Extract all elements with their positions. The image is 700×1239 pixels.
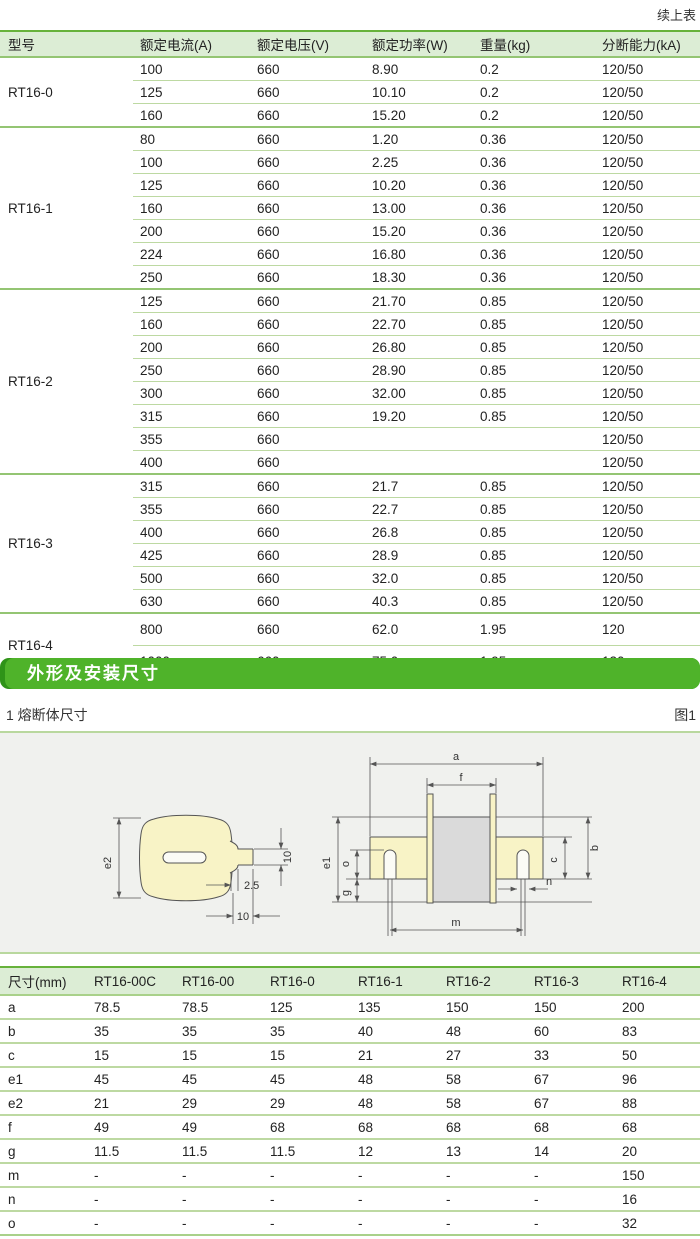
spec-value-cell: 0.2 bbox=[473, 104, 595, 128]
spec-value-cell: 120/50 bbox=[595, 405, 700, 428]
dimension-letter-cell: b bbox=[0, 1019, 87, 1043]
spec-value-cell: 120/50 bbox=[595, 590, 700, 614]
spec-value-cell: 8.90 bbox=[365, 57, 473, 81]
spec-value-cell: 0.36 bbox=[473, 243, 595, 266]
dimension-value-cell: 200 bbox=[615, 995, 700, 1019]
spec-value-cell: 0.36 bbox=[473, 220, 595, 243]
spec-value-cell: 120/50 bbox=[595, 104, 700, 128]
spec-value-cell: 120/50 bbox=[595, 220, 700, 243]
dimension-value-cell: - bbox=[87, 1163, 175, 1187]
dimension-value-cell: 67 bbox=[527, 1091, 615, 1115]
section-title: 外形及安装尺寸 bbox=[5, 658, 700, 689]
spec-value-cell: 120/50 bbox=[595, 336, 700, 359]
spec-value-cell: 22.7 bbox=[365, 498, 473, 521]
dimension-row: o------32 bbox=[0, 1211, 700, 1235]
dimension-value-cell: 96 bbox=[615, 1067, 700, 1091]
spec-value-cell: 160 bbox=[133, 197, 250, 220]
dimension-value-cell: - bbox=[527, 1211, 615, 1235]
dimension-row: e145454548586796 bbox=[0, 1067, 700, 1091]
dimension-value-cell: 40 bbox=[351, 1019, 439, 1043]
dimension-column-header: RT16-0 bbox=[263, 967, 351, 995]
spec-value-cell: 250 bbox=[133, 359, 250, 382]
spec-value-cell: 80 bbox=[133, 127, 250, 151]
dimension-value-cell: - bbox=[175, 1211, 263, 1235]
spec-value-cell: 100 bbox=[133, 57, 250, 81]
dimension-column-header: RT16-1 bbox=[351, 967, 439, 995]
dimension-value-cell: 35 bbox=[87, 1019, 175, 1043]
dimension-value-cell: 48 bbox=[351, 1067, 439, 1091]
dimension-value-cell: - bbox=[439, 1163, 527, 1187]
dimension-table-body: a78.578.5125135150150200b35353540486083c… bbox=[0, 995, 700, 1235]
dimension-value-cell: - bbox=[175, 1163, 263, 1187]
spec-value-cell: 660 bbox=[250, 521, 365, 544]
spec-value-cell: 660 bbox=[250, 428, 365, 451]
dimension-value-cell: - bbox=[87, 1187, 175, 1211]
spec-value-cell: 660 bbox=[250, 57, 365, 81]
dimension-value-cell: 45 bbox=[175, 1067, 263, 1091]
dimension-value-cell: 35 bbox=[263, 1019, 351, 1043]
spec-value-cell: 315 bbox=[133, 474, 250, 498]
spec-value-cell: 0.36 bbox=[473, 174, 595, 197]
spec-model-group: RT16-212566021.700.85120/5016066022.700.… bbox=[0, 289, 700, 474]
spec-value-cell: 32.0 bbox=[365, 567, 473, 590]
datasheet-page: 续上表 型号额定电流(A)额定电压(V)额定功率(W)重量(kg)分断能力(kA… bbox=[0, 0, 700, 1239]
dimension-value-cell: - bbox=[351, 1163, 439, 1187]
spec-value-cell: 125 bbox=[133, 81, 250, 104]
spec-value-cell: 18.30 bbox=[365, 266, 473, 290]
dimension-letter-cell: g bbox=[0, 1139, 87, 1163]
dim-label-g: g bbox=[340, 890, 352, 896]
dimension-value-cell: - bbox=[87, 1211, 175, 1235]
spec-row: RT16-331566021.70.85120/50 bbox=[0, 474, 700, 498]
spec-value-cell: 10.10 bbox=[365, 81, 473, 104]
spec-value-cell: 660 bbox=[250, 81, 365, 104]
spec-value-cell: 660 bbox=[250, 266, 365, 290]
dimension-value-cell: - bbox=[439, 1211, 527, 1235]
spec-column-header: 型号 bbox=[0, 31, 133, 57]
spec-value-cell: 660 bbox=[250, 151, 365, 174]
dimension-value-cell: 60 bbox=[527, 1019, 615, 1043]
dimension-value-cell: 21 bbox=[87, 1091, 175, 1115]
spec-column-header: 额定电流(A) bbox=[133, 31, 250, 57]
dimension-letter-cell: c bbox=[0, 1043, 87, 1067]
dimension-value-cell: 68 bbox=[351, 1115, 439, 1139]
dim-label-e1: e1 bbox=[321, 857, 333, 869]
dimension-value-cell: 88 bbox=[615, 1091, 700, 1115]
dimension-letter-cell: m bbox=[0, 1163, 87, 1187]
dimension-value-cell: 20 bbox=[615, 1139, 700, 1163]
spec-value-cell: 660 bbox=[250, 382, 365, 405]
spec-value-cell: 0.36 bbox=[473, 197, 595, 220]
dimension-value-cell: 68 bbox=[615, 1115, 700, 1139]
dimension-row: e221292948586788 bbox=[0, 1091, 700, 1115]
model-name-cell: RT16-2 bbox=[0, 289, 133, 474]
dimension-value-cell: 32 bbox=[615, 1211, 700, 1235]
spec-value-cell: 120/50 bbox=[595, 451, 700, 475]
continued-table-note: 续上表 bbox=[657, 5, 696, 24]
dim-label-m: m bbox=[451, 917, 460, 929]
dimension-letter-cell: e2 bbox=[0, 1091, 87, 1115]
dimension-value-cell: 83 bbox=[615, 1019, 700, 1043]
spec-value-cell: 250 bbox=[133, 266, 250, 290]
dimension-table-head: 尺寸(mm)RT16-00CRT16-00RT16-0RT16-1RT16-2R… bbox=[0, 967, 700, 995]
spec-value-cell: 355 bbox=[133, 498, 250, 521]
spec-value-cell: 0.85 bbox=[473, 567, 595, 590]
spec-value-cell: 300 bbox=[133, 382, 250, 405]
spec-value-cell: 0.85 bbox=[473, 521, 595, 544]
spec-model-group: RT16-01006608.900.2120/5012566010.100.21… bbox=[0, 57, 700, 127]
dimension-value-cell: 67 bbox=[527, 1067, 615, 1091]
spec-value-cell: 400 bbox=[133, 521, 250, 544]
spec-value-cell: 660 bbox=[250, 127, 365, 151]
spec-value-cell: 500 bbox=[133, 567, 250, 590]
dimension-letter-cell: e1 bbox=[0, 1067, 87, 1091]
dimension-value-cell: 78.5 bbox=[175, 995, 263, 1019]
spec-value-cell: 0.85 bbox=[473, 590, 595, 614]
spec-value-cell: 120/50 bbox=[595, 197, 700, 220]
spec-value-cell: 200 bbox=[133, 336, 250, 359]
dimension-column-header: RT16-3 bbox=[527, 967, 615, 995]
dimension-value-cell: - bbox=[351, 1211, 439, 1235]
dimension-value-cell: 16 bbox=[615, 1187, 700, 1211]
spec-value-cell: 660 bbox=[250, 590, 365, 614]
dimension-column-header: RT16-00C bbox=[87, 967, 175, 995]
dimension-value-cell: 50 bbox=[615, 1043, 700, 1067]
dimension-value-cell: 49 bbox=[87, 1115, 175, 1139]
spec-value-cell: 0.85 bbox=[473, 498, 595, 521]
spec-column-header: 重量(kg) bbox=[473, 31, 595, 57]
spec-value-cell: 160 bbox=[133, 104, 250, 128]
spec-value-cell: 120/50 bbox=[595, 266, 700, 290]
spec-value-cell: 32.00 bbox=[365, 382, 473, 405]
spec-value-cell: 125 bbox=[133, 174, 250, 197]
dimension-value-cell: 58 bbox=[439, 1091, 527, 1115]
slot-right bbox=[517, 850, 529, 879]
spec-value-cell: 660 bbox=[250, 174, 365, 197]
spec-value-cell: 315 bbox=[133, 405, 250, 428]
spec-value-cell: 0.85 bbox=[473, 544, 595, 567]
section-header-bar: 外形及安装尺寸 bbox=[0, 658, 700, 689]
dimension-value-cell: - bbox=[527, 1187, 615, 1211]
dim-label-a: a bbox=[453, 751, 460, 763]
dimension-value-cell: - bbox=[263, 1163, 351, 1187]
dimension-value-cell: 21 bbox=[351, 1043, 439, 1067]
spec-value-cell: 120/50 bbox=[595, 81, 700, 104]
spec-value-cell: 120 bbox=[595, 613, 700, 646]
spec-model-group: RT16-1806601.200.36120/501006602.250.361… bbox=[0, 127, 700, 289]
spec-value-cell: 660 bbox=[250, 544, 365, 567]
spec-row: RT16-480066062.01.95120 bbox=[0, 613, 700, 646]
spec-value-cell: 660 bbox=[250, 336, 365, 359]
spec-value-cell: 660 bbox=[250, 197, 365, 220]
spec-value-cell: 120/50 bbox=[595, 243, 700, 266]
spec-value-cell: 125 bbox=[133, 289, 250, 313]
figure-reference: 图1 bbox=[674, 705, 696, 725]
spec-value-cell: 10.20 bbox=[365, 174, 473, 197]
dimension-value-cell: 11.5 bbox=[263, 1139, 351, 1163]
dimension-column-header: RT16-4 bbox=[615, 967, 700, 995]
spec-value-cell: 660 bbox=[250, 359, 365, 382]
spec-column-header: 分断能力(kA) bbox=[595, 31, 700, 57]
model-name-cell: RT16-3 bbox=[0, 474, 133, 613]
spec-value-cell: 0.2 bbox=[473, 57, 595, 81]
spec-value-cell bbox=[365, 451, 473, 475]
spec-value-cell bbox=[473, 451, 595, 475]
fuse-body bbox=[433, 817, 490, 902]
spec-value-cell: 0.85 bbox=[473, 474, 595, 498]
spec-value-cell: 1.95 bbox=[473, 613, 595, 646]
dimension-value-cell: 12 bbox=[351, 1139, 439, 1163]
fuse-dimension-drawing: e2 10 2.5 bbox=[0, 733, 700, 952]
spec-column-header: 额定功率(W) bbox=[365, 31, 473, 57]
dimension-value-cell: 13 bbox=[439, 1139, 527, 1163]
dimension-value-cell: 135 bbox=[351, 995, 439, 1019]
dim-label-10-tab: 10 bbox=[282, 851, 294, 863]
dimension-value-cell: 15 bbox=[263, 1043, 351, 1067]
dimension-value-cell: 45 bbox=[263, 1067, 351, 1091]
spec-value-cell: 660 bbox=[250, 104, 365, 128]
dimension-value-cell: 15 bbox=[87, 1043, 175, 1067]
dimension-row: g11.511.511.512131420 bbox=[0, 1139, 700, 1163]
spec-row: RT16-212566021.700.85120/50 bbox=[0, 289, 700, 313]
dimension-column-header: RT16-2 bbox=[439, 967, 527, 995]
dimension-row: c15151521273350 bbox=[0, 1043, 700, 1067]
spec-value-cell bbox=[473, 428, 595, 451]
spec-table: 型号额定电流(A)额定电压(V)额定功率(W)重量(kg)分断能力(kA) RT… bbox=[0, 30, 700, 679]
spec-value-cell: 0.85 bbox=[473, 382, 595, 405]
contact-arm-left bbox=[370, 837, 427, 879]
dimension-row: f49496868686868 bbox=[0, 1115, 700, 1139]
spec-value-cell: 22.70 bbox=[365, 313, 473, 336]
dimension-value-cell: 68 bbox=[439, 1115, 527, 1139]
dim-label-o: o bbox=[340, 861, 352, 867]
dimension-value-cell: 49 bbox=[175, 1115, 263, 1139]
dimension-value-cell: - bbox=[439, 1187, 527, 1211]
dimension-value-cell: 29 bbox=[175, 1091, 263, 1115]
spec-value-cell: 120/50 bbox=[595, 174, 700, 197]
spec-value-cell: 224 bbox=[133, 243, 250, 266]
spec-value-cell: 120/50 bbox=[595, 382, 700, 405]
blade-strip-right bbox=[490, 794, 496, 903]
spec-value-cell: 660 bbox=[250, 613, 365, 646]
spec-value-cell: 0.36 bbox=[473, 266, 595, 290]
spec-value-cell: 0.85 bbox=[473, 336, 595, 359]
spec-value-cell: 120/50 bbox=[595, 428, 700, 451]
dimension-value-cell: 27 bbox=[439, 1043, 527, 1067]
spec-value-cell: 200 bbox=[133, 220, 250, 243]
spec-table-head: 型号额定电流(A)额定电压(V)额定功率(W)重量(kg)分断能力(kA) bbox=[0, 31, 700, 57]
dimension-value-cell: - bbox=[175, 1187, 263, 1211]
dimension-value-cell: 48 bbox=[439, 1019, 527, 1043]
dimension-value-cell: 78.5 bbox=[87, 995, 175, 1019]
spec-value-cell: 19.20 bbox=[365, 405, 473, 428]
dimension-row: n------16 bbox=[0, 1187, 700, 1211]
dimension-value-cell: - bbox=[351, 1187, 439, 1211]
slot-left bbox=[384, 850, 396, 879]
spec-row: RT16-1806601.200.36120/50 bbox=[0, 127, 700, 151]
spec-value-cell: 40.3 bbox=[365, 590, 473, 614]
spec-value-cell: 100 bbox=[133, 151, 250, 174]
blade-slot bbox=[163, 852, 206, 863]
dimension-row: a78.578.5125135150150200 bbox=[0, 995, 700, 1019]
spec-value-cell: 660 bbox=[250, 289, 365, 313]
dimension-value-cell: - bbox=[263, 1211, 351, 1235]
dimension-value-cell: 45 bbox=[87, 1067, 175, 1091]
spec-value-cell: 28.9 bbox=[365, 544, 473, 567]
spec-value-cell: 16.80 bbox=[365, 243, 473, 266]
spec-value-cell: 0.36 bbox=[473, 127, 595, 151]
dimension-value-cell: 29 bbox=[263, 1091, 351, 1115]
dimension-value-cell: 150 bbox=[527, 995, 615, 1019]
dimension-value-cell: 150 bbox=[615, 1163, 700, 1187]
spec-value-cell: 120/50 bbox=[595, 498, 700, 521]
spec-value-cell: 120/50 bbox=[595, 521, 700, 544]
dim-label-f: f bbox=[459, 772, 463, 784]
model-name-cell: RT16-1 bbox=[0, 127, 133, 289]
spec-value-cell: 0.85 bbox=[473, 313, 595, 336]
spec-value-cell: 28.90 bbox=[365, 359, 473, 382]
dimension-letter-cell: o bbox=[0, 1211, 87, 1235]
spec-value-cell: 120/50 bbox=[595, 151, 700, 174]
dimension-value-cell: 14 bbox=[527, 1139, 615, 1163]
dimension-value-cell: 58 bbox=[439, 1067, 527, 1091]
dimension-value-cell: 125 bbox=[263, 995, 351, 1019]
dimension-value-cell: 68 bbox=[527, 1115, 615, 1139]
model-name-cell: RT16-0 bbox=[0, 57, 133, 127]
dimension-value-cell: - bbox=[263, 1187, 351, 1211]
spec-value-cell: 120/50 bbox=[595, 127, 700, 151]
spec-value-cell: 0.2 bbox=[473, 81, 595, 104]
dimension-value-cell: - bbox=[527, 1163, 615, 1187]
spec-value-cell: 120/50 bbox=[595, 289, 700, 313]
spec-value-cell: 355 bbox=[133, 428, 250, 451]
spec-value-cell: 400 bbox=[133, 451, 250, 475]
spec-value-cell: 160 bbox=[133, 313, 250, 336]
fuse-front-view: a f e1 o g b bbox=[321, 751, 601, 936]
dimension-value-cell: 11.5 bbox=[175, 1139, 263, 1163]
dimension-header-row: 尺寸(mm)RT16-00CRT16-00RT16-0RT16-1RT16-2R… bbox=[0, 967, 700, 995]
spec-value-cell: 26.8 bbox=[365, 521, 473, 544]
blade-strip-left bbox=[427, 794, 433, 903]
dim-label-2-5: 2.5 bbox=[244, 880, 259, 892]
spec-value-cell: 15.20 bbox=[365, 104, 473, 128]
spec-value-cell: 800 bbox=[133, 613, 250, 646]
dim-label-e2: e2 bbox=[102, 857, 114, 869]
blade-side-view: e2 10 2.5 bbox=[102, 815, 294, 924]
dim-label-n: n bbox=[546, 876, 552, 888]
spec-value-cell: 660 bbox=[250, 567, 365, 590]
figure-caption: 1 熔断体尺寸 bbox=[6, 705, 88, 725]
spec-value-cell: 120/50 bbox=[595, 359, 700, 382]
spec-value-cell: 21.7 bbox=[365, 474, 473, 498]
dimension-letter-cell: f bbox=[0, 1115, 87, 1139]
spec-value-cell: 660 bbox=[250, 313, 365, 336]
blade-tab bbox=[230, 841, 253, 873]
spec-value-cell: 660 bbox=[250, 243, 365, 266]
spec-value-cell: 630 bbox=[133, 590, 250, 614]
spec-value-cell: 660 bbox=[250, 451, 365, 475]
spec-value-cell: 2.25 bbox=[365, 151, 473, 174]
spec-header-row: 型号额定电流(A)额定电压(V)额定功率(W)重量(kg)分断能力(kA) bbox=[0, 31, 700, 57]
dimension-value-cell: 15 bbox=[175, 1043, 263, 1067]
dimension-value-cell: 150 bbox=[439, 995, 527, 1019]
dim-label-b: b bbox=[589, 845, 601, 851]
spec-value-cell: 1.20 bbox=[365, 127, 473, 151]
spec-value-cell: 13.00 bbox=[365, 197, 473, 220]
spec-value-cell: 120/50 bbox=[595, 57, 700, 81]
spec-value-cell: 660 bbox=[250, 220, 365, 243]
spec-value-cell: 0.85 bbox=[473, 359, 595, 382]
spec-model-group: RT16-331566021.70.85120/5035566022.70.85… bbox=[0, 474, 700, 613]
dimension-value-cell: 35 bbox=[175, 1019, 263, 1043]
spec-value-cell: 62.0 bbox=[365, 613, 473, 646]
spec-value-cell: 26.80 bbox=[365, 336, 473, 359]
spec-value-cell: 120/50 bbox=[595, 313, 700, 336]
dimension-letter-cell: n bbox=[0, 1187, 87, 1211]
dimension-value-cell: 68 bbox=[263, 1115, 351, 1139]
spec-column-header: 额定电压(V) bbox=[250, 31, 365, 57]
dimension-value-cell: 11.5 bbox=[87, 1139, 175, 1163]
dim-label-c: c bbox=[548, 857, 560, 863]
spec-value-cell: 120/50 bbox=[595, 567, 700, 590]
dimension-column-header: 尺寸(mm) bbox=[0, 967, 87, 995]
dim-label-10-width: 10 bbox=[237, 911, 249, 923]
technical-drawing-panel: e2 10 2.5 bbox=[0, 731, 700, 954]
dimension-letter-cell: a bbox=[0, 995, 87, 1019]
spec-value-cell: 660 bbox=[250, 474, 365, 498]
spec-row: RT16-01006608.900.2120/50 bbox=[0, 57, 700, 81]
dimension-row: m------150 bbox=[0, 1163, 700, 1187]
dimension-column-header: RT16-00 bbox=[175, 967, 263, 995]
spec-value-cell: 660 bbox=[250, 498, 365, 521]
spec-value-cell: 660 bbox=[250, 405, 365, 428]
spec-value-cell: 425 bbox=[133, 544, 250, 567]
spec-value-cell: 0.36 bbox=[473, 151, 595, 174]
dimension-table: 尺寸(mm)RT16-00CRT16-00RT16-0RT16-1RT16-2R… bbox=[0, 966, 700, 1236]
dimension-value-cell: 33 bbox=[527, 1043, 615, 1067]
spec-value-cell bbox=[365, 428, 473, 451]
spec-value-cell: 0.85 bbox=[473, 289, 595, 313]
spec-value-cell: 120/50 bbox=[595, 544, 700, 567]
spec-value-cell: 0.85 bbox=[473, 405, 595, 428]
spec-value-cell: 21.70 bbox=[365, 289, 473, 313]
dimension-value-cell: 48 bbox=[351, 1091, 439, 1115]
dimension-row: b35353540486083 bbox=[0, 1019, 700, 1043]
spec-value-cell: 120/50 bbox=[595, 474, 700, 498]
spec-value-cell: 15.20 bbox=[365, 220, 473, 243]
